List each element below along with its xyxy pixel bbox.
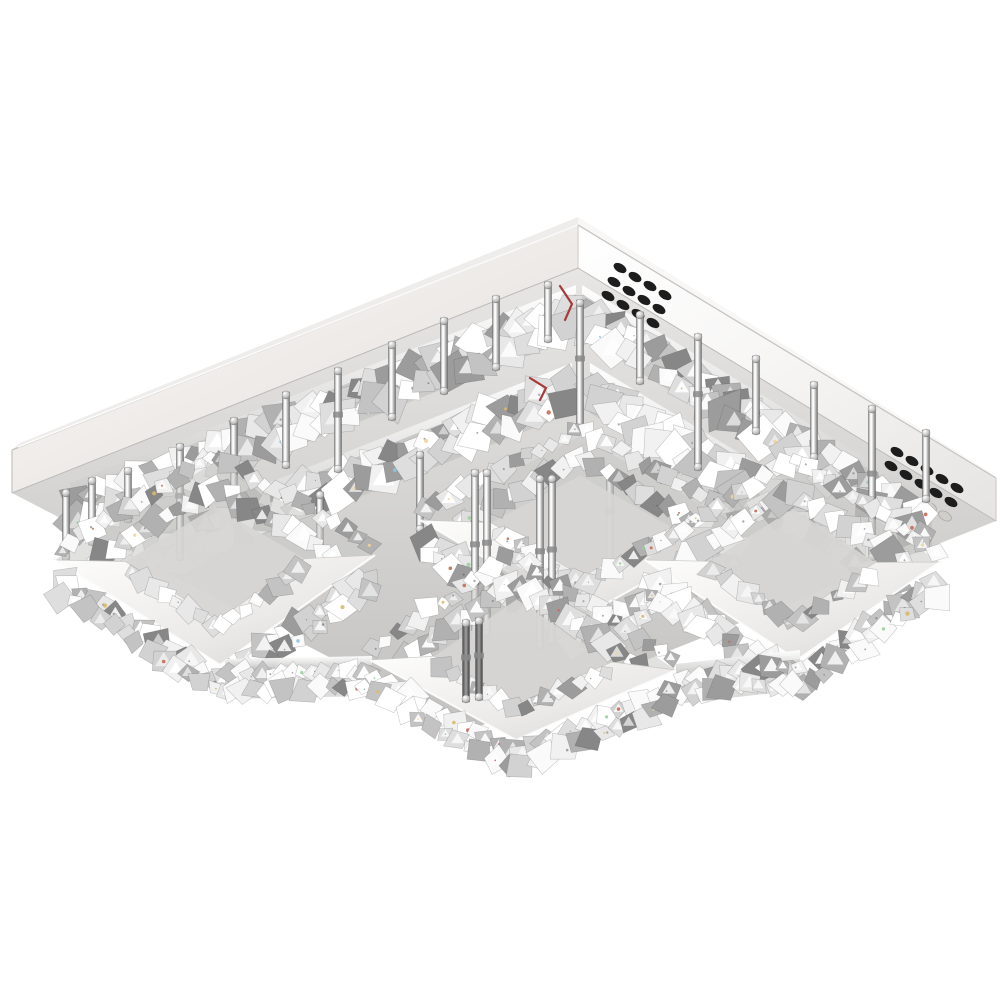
crystal-ceiling-light-illustration (0, 0, 1000, 1000)
product-photo (0, 0, 1000, 1000)
product-image-canvas (0, 0, 1000, 1000)
